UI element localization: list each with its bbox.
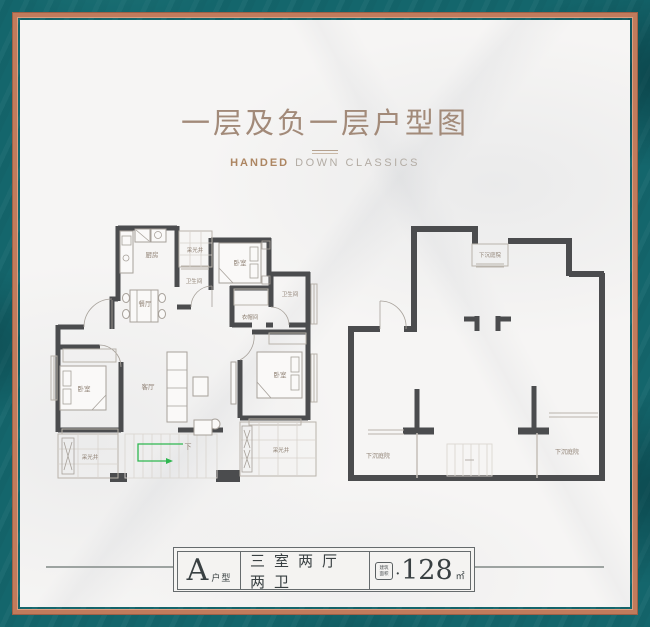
- room-label-cloakroom: 衣帽间: [242, 313, 259, 321]
- room-label-bathroom-1: 卫生间: [186, 277, 203, 285]
- area-label-minibox: 建筑 面积: [375, 562, 393, 580]
- room-label-bedroom-3: 卧室: [274, 370, 288, 379]
- stairs-down-label: 下: [185, 443, 192, 451]
- unit-type-cell: A 户型: [178, 552, 240, 589]
- courtyard-bl-label: 下沉庭院: [366, 452, 390, 460]
- area-value: 128: [401, 557, 453, 584]
- area-unit: ㎡: [456, 569, 465, 582]
- room-label-lightwell-bl: 采光井: [82, 453, 99, 461]
- brand-rest-text: DOWN CLASSICS: [295, 157, 420, 169]
- area-cell: 建筑 面积 • 128 ㎡: [370, 552, 470, 589]
- room-label-bedroom-1: 卧室: [234, 258, 248, 267]
- brand-bold-text: HANDED: [230, 157, 289, 169]
- room-label-lightwell-br: 采光井: [273, 446, 290, 454]
- floor-plan-basement: 下沉庭院 下沉庭院 下沉庭院: [340, 210, 630, 500]
- plan2-stairs-faint: [447, 444, 492, 476]
- unit-suffix: 户型: [211, 571, 231, 584]
- floor-plan-first: 厨房 采光井 卫生间 卧室 餐厅 衣帽间 卫生间 客厅 卧室 卧室 采光井 采光…: [40, 205, 335, 495]
- page-title: 一层及负一层户型图: [0, 106, 650, 142]
- room-label-living: 客厅: [142, 382, 156, 391]
- decor-line: [312, 150, 338, 154]
- unit-info-box: A 户型 三室两厅两卫 建筑 面积 • 128 ㎡: [173, 547, 475, 592]
- area-separator: •: [396, 569, 399, 578]
- poster-canvas: 一层及负一层户型图 HANDEDDOWN CLASSICS: [0, 0, 650, 627]
- plan1-stairs: [125, 434, 217, 478]
- room-label-dining: 餐厅: [139, 299, 153, 308]
- unit-letter: A: [187, 556, 209, 586]
- area-label-line1: 建筑: [380, 565, 389, 570]
- room-label-bathroom-2: 卫生间: [282, 290, 299, 298]
- courtyard-br-label: 下沉庭院: [555, 448, 579, 456]
- brand-subtitle: HANDEDDOWN CLASSICS: [0, 157, 650, 169]
- plan2-windows: [368, 413, 598, 434]
- courtyard-top-label: 下沉庭院: [479, 251, 502, 259]
- plan2-partitions: [417, 433, 537, 478]
- plan2-inner-walls: [417, 316, 534, 433]
- plan2-door: [380, 301, 406, 329]
- room-label-bedroom-2: 卧室: [78, 384, 92, 393]
- room-label-kitchen: 厨房: [146, 250, 159, 259]
- area-label-line2: 面积: [380, 571, 389, 576]
- unit-info-inner: A 户型 三室两厅两卫 建筑 面积 • 128 ㎡: [177, 551, 471, 590]
- room-count-cell: 三室两厅两卫: [241, 552, 369, 589]
- room-label-lightwell-top: 采光井: [187, 246, 204, 254]
